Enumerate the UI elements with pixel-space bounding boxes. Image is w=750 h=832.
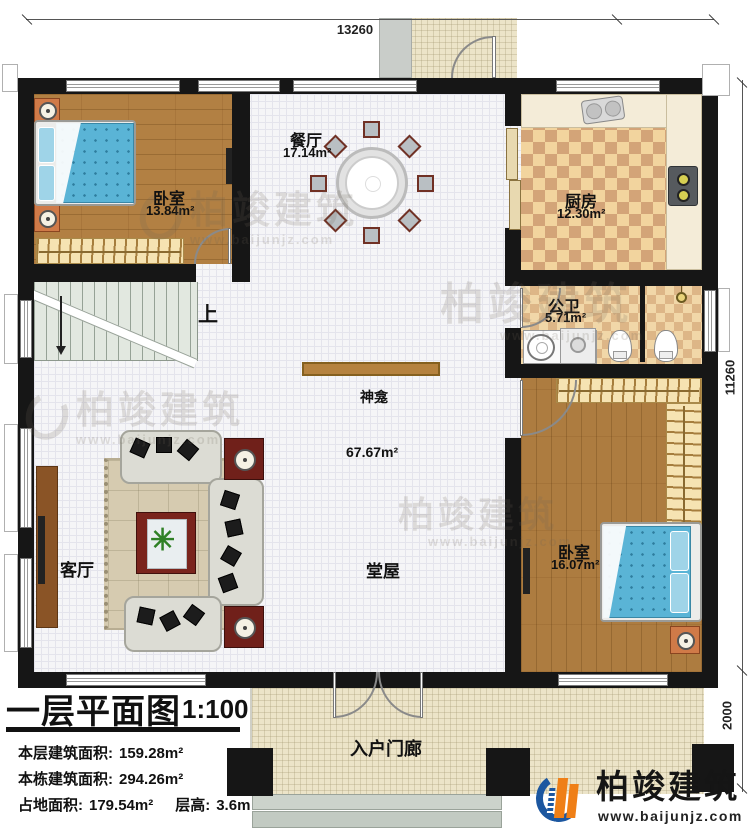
- bedroom1-pillow-2: [38, 165, 55, 201]
- porch-step-1: [252, 794, 502, 810]
- porch-step-2: [252, 811, 502, 828]
- dimension-depth-label: 11260: [723, 348, 738, 408]
- dining-table-center: [365, 176, 381, 192]
- window-dining-top-1: [198, 80, 280, 92]
- lamp-icon: [234, 449, 256, 471]
- wall-bedroom1-bottom: [34, 264, 196, 282]
- porch-column-left: [227, 748, 273, 796]
- stat-value: 294.26m²: [119, 771, 183, 788]
- stat-floor-area: 本层建筑面积:159.28m²: [18, 742, 183, 763]
- logo-company-name: 柏竣建筑: [596, 770, 740, 803]
- bedroom2-door-leaf: [520, 380, 523, 436]
- window-sill: [702, 64, 730, 96]
- kitchen-slide-panel-1: [506, 128, 518, 180]
- bedroom2-area: 16.07m²: [551, 557, 599, 572]
- living-label: 客厅: [60, 556, 94, 581]
- shower: [560, 328, 596, 364]
- sofa-cushion: [137, 607, 156, 626]
- stair-arrow-head: [56, 346, 66, 355]
- bathroom-door-leaf: [520, 288, 523, 328]
- dining-chair: [417, 175, 434, 192]
- shrine-label: 神龛: [360, 387, 388, 407]
- hall-area: 67.67m²: [346, 444, 398, 460]
- stat-label: 占地面积:: [18, 797, 83, 814]
- wardrobe-rod: [559, 390, 699, 392]
- side-table-top: [224, 438, 264, 480]
- bedroom2-tv: [523, 548, 530, 594]
- bath-lamp: [676, 292, 687, 303]
- bedroom1-door-leaf: [228, 228, 231, 264]
- toilet-2: [654, 330, 678, 362]
- wall-bedroom2-left: [505, 438, 521, 672]
- wardrobe-rod: [683, 406, 685, 530]
- plan-title: 一层平面图: [6, 684, 181, 733]
- dining-chair: [310, 175, 327, 192]
- dining-chair: [363, 227, 380, 244]
- window-bedroom1-top: [66, 80, 180, 92]
- window-bathroom-right: [704, 290, 716, 352]
- lamp-icon: [39, 210, 57, 228]
- wardrobe-rod: [39, 251, 181, 253]
- stat-total-area: 本栋建筑面积:294.26m²: [18, 768, 183, 789]
- company-logo: 柏竣建筑 www.baijunjz.com: [534, 766, 746, 828]
- bedroom2-pillow-2: [670, 573, 689, 613]
- logo-website: www.baijunjz.com: [598, 808, 743, 824]
- stair-arrow-shaft: [60, 296, 62, 346]
- window-living-left-1: [20, 428, 32, 528]
- bedroom1-pillow-1: [38, 127, 55, 163]
- dimension-line-top: [26, 19, 714, 20]
- window-sill: [4, 424, 18, 532]
- wall-kitchen-left-b: [505, 228, 521, 270]
- window-living-left-2: [20, 558, 32, 648]
- side-table-bottom: [224, 606, 264, 648]
- entry-porch-label: 入户门廊: [350, 735, 422, 761]
- stat-label: 层高:: [175, 797, 210, 814]
- bedroom2-wardrobe-top: [556, 378, 702, 403]
- stat-value: 159.28m²: [119, 745, 183, 762]
- wall-bath-left: [505, 328, 521, 364]
- stat-label: 本栋建筑面积:: [18, 771, 113, 788]
- dimension-line-right: [742, 80, 743, 792]
- hall-label: 堂屋: [366, 557, 400, 582]
- porch-column-middle: [486, 748, 530, 796]
- dimension-width-label: 13260: [330, 22, 380, 37]
- window-stairs-left: [20, 300, 32, 358]
- kitchen-stove: [668, 166, 698, 206]
- lamp-icon: [39, 102, 57, 120]
- dining-chair: [363, 121, 380, 138]
- dimension-porch-label: 2000: [720, 691, 735, 741]
- sofa-cushion: [225, 519, 244, 538]
- wall-bath-bottom: [505, 364, 718, 378]
- lamp-icon: [677, 632, 695, 650]
- wall-kitchen-left-a: [505, 94, 521, 126]
- plan-scale: 1:100: [182, 694, 249, 725]
- bedroom1-wardrobe: [36, 238, 184, 264]
- wall-right: [702, 78, 718, 688]
- logo-mark-icon: [534, 768, 590, 826]
- living-tv: [38, 516, 45, 584]
- kitchen-slide-panel-2: [509, 180, 521, 230]
- bedroom1-area: 13.84m²: [146, 203, 194, 218]
- stairs-up-label: 上: [198, 298, 218, 327]
- stat-value: 179.54m²: [89, 797, 153, 814]
- wall-kitchen-bath-divider: [505, 270, 718, 286]
- title-underline: [6, 727, 240, 732]
- shrine-shelf: [302, 362, 440, 376]
- window-bedroom2-bottom: [558, 674, 668, 686]
- stat-footprint-height: 占地面积:179.54m²层高:3.6m: [18, 794, 250, 815]
- entry-door-leaf-left: [333, 672, 336, 718]
- stat-label: 本层建筑面积:: [18, 745, 113, 762]
- lamp-icon: [234, 617, 256, 639]
- wall-bath-partition: [640, 286, 645, 362]
- window-dining-top-2: [293, 80, 417, 92]
- window-sill: [4, 294, 18, 364]
- stat-value: 3.6m: [216, 797, 250, 814]
- bedroom2-pillow-1: [670, 531, 689, 571]
- sofa-cushion: [156, 437, 172, 453]
- window-sill: [718, 288, 730, 352]
- rear-door-leaf: [492, 36, 496, 78]
- bedroom2-nightstand: [670, 626, 700, 654]
- wall-bedroom1-right: [232, 94, 250, 282]
- dining-area: 17.14m²: [283, 145, 331, 160]
- bedroom1-nightstand-bottom: [34, 204, 60, 232]
- window-kitchen-top: [556, 80, 660, 92]
- toilet-1: [608, 330, 632, 362]
- window-sill: [2, 64, 18, 92]
- floor-plan-page: ✳: [0, 0, 750, 832]
- rear-door-mat: [379, 18, 412, 78]
- bathroom-area: 5.71m²: [545, 310, 586, 325]
- bedroom1-nightstand-top: [34, 98, 60, 122]
- entry-door-leaf-right: [420, 672, 423, 718]
- kitchen-area: 12.30m²: [557, 206, 605, 221]
- window-sill: [4, 554, 18, 652]
- bedroom2-wardrobe-right: [666, 403, 702, 533]
- bath-sink: [527, 334, 555, 361]
- plant-icon: ✳: [150, 526, 175, 556]
